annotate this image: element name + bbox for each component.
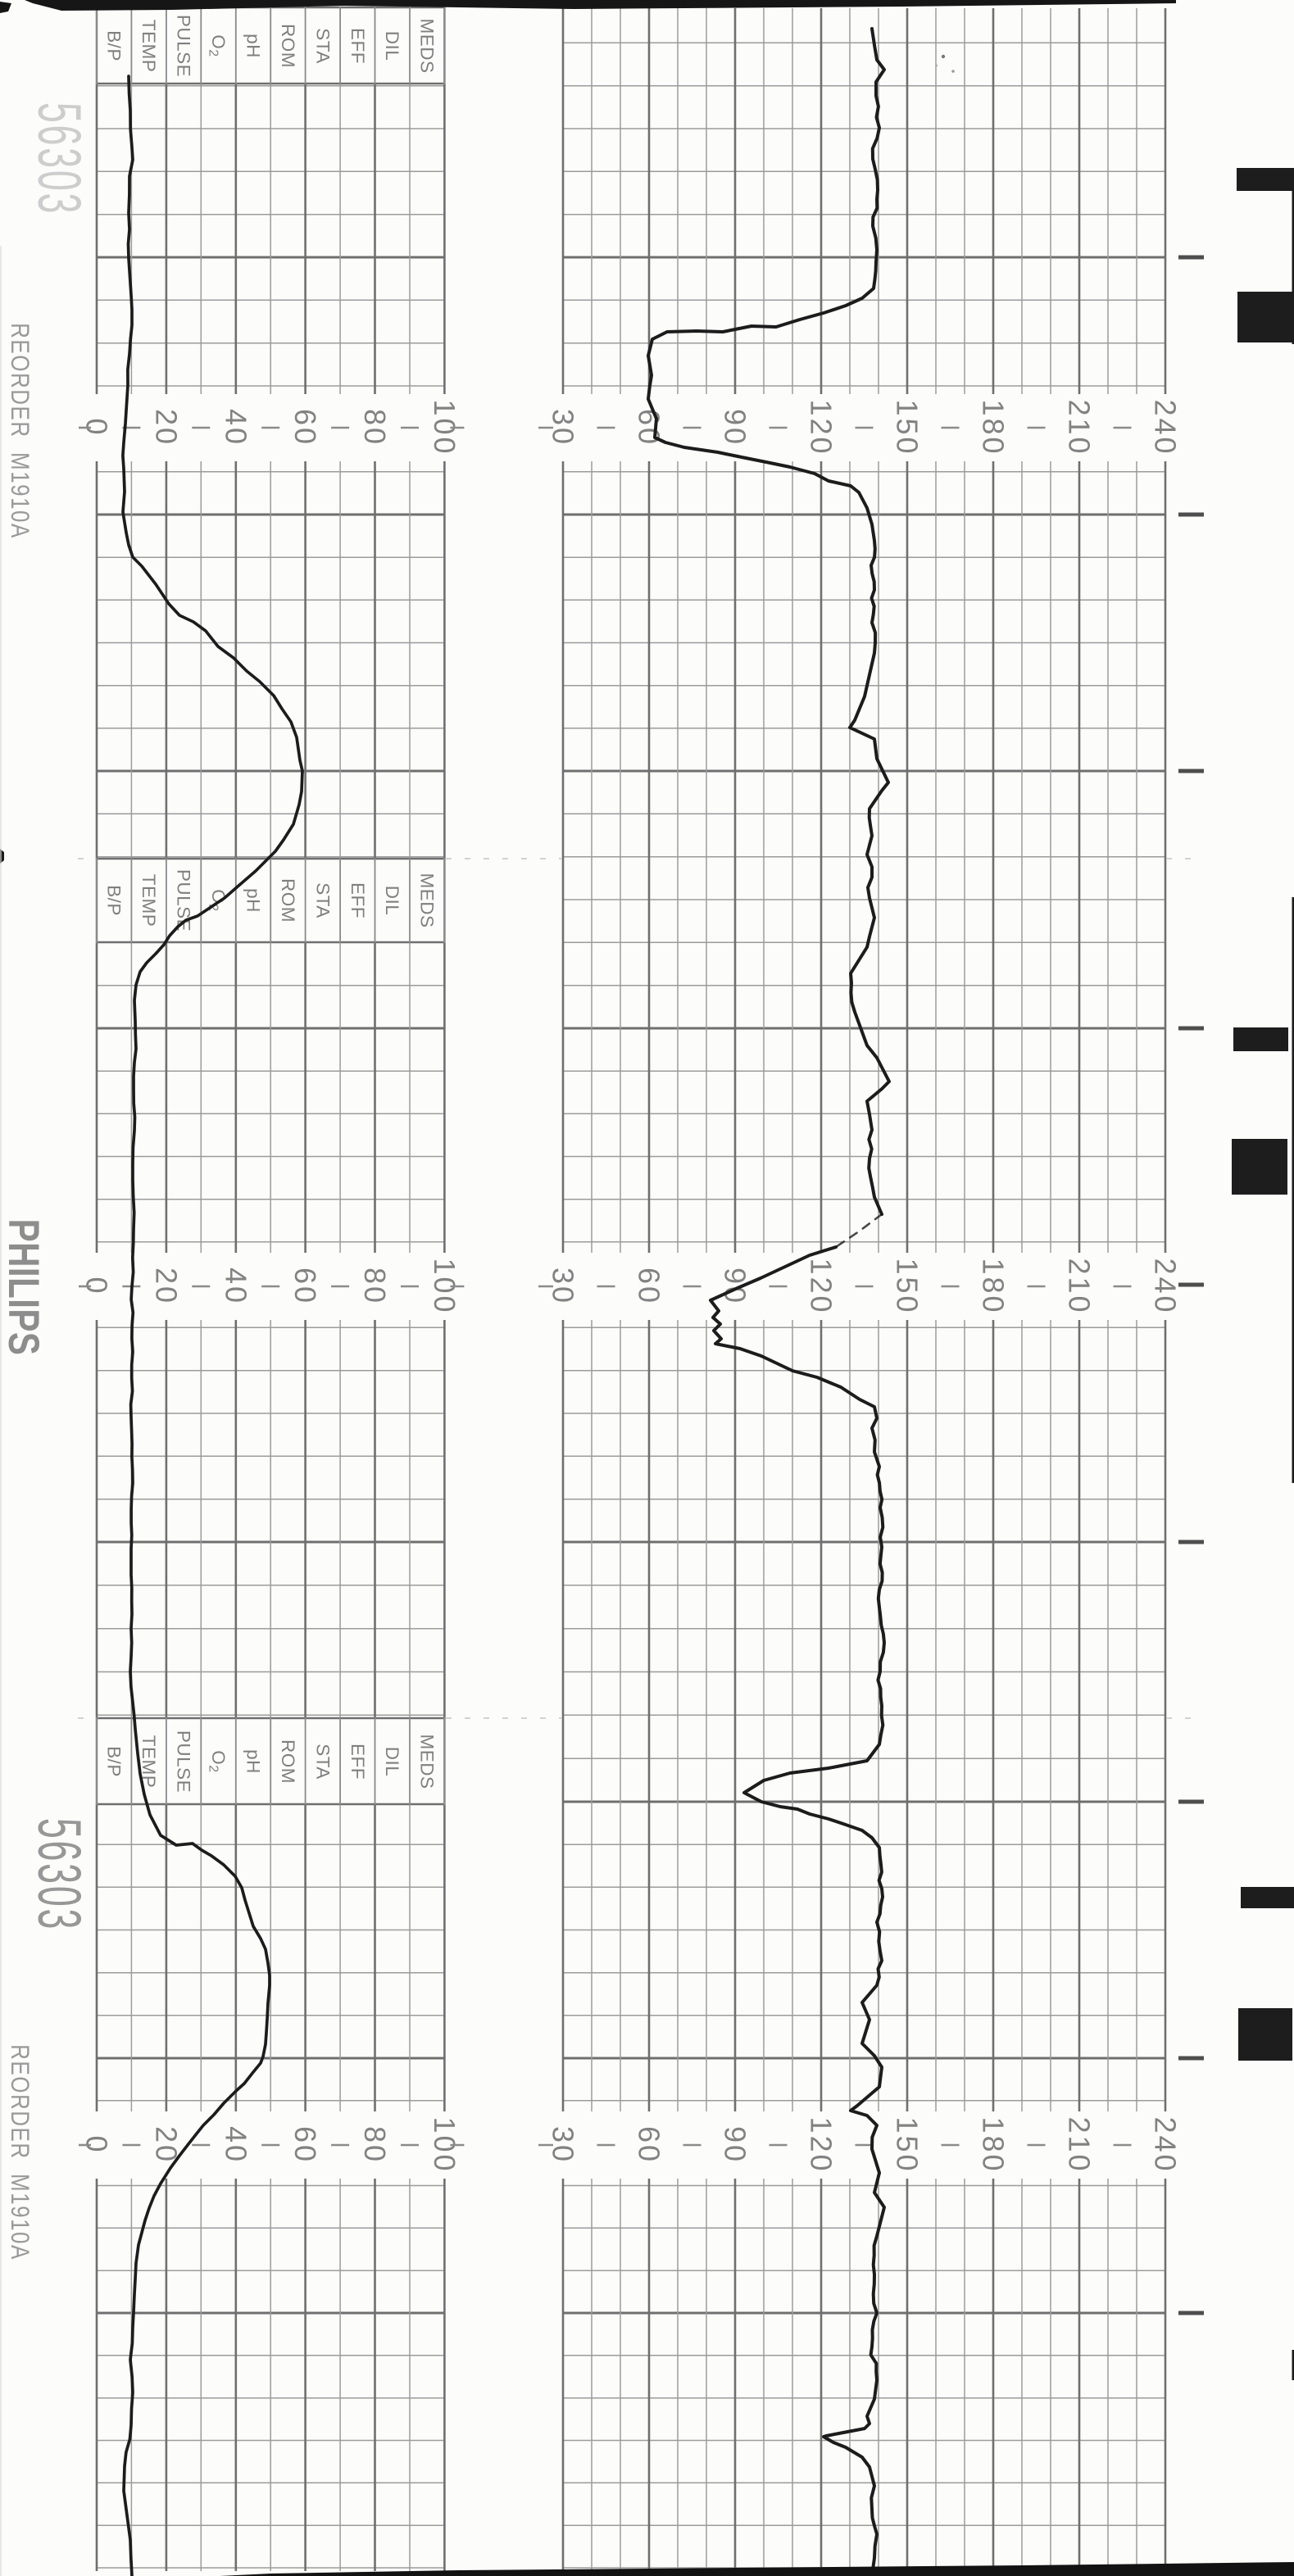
svg-text:MEDS: MEDS xyxy=(417,873,438,927)
svg-text:pH: pH xyxy=(243,1749,264,1774)
svg-text:ROM: ROM xyxy=(278,878,298,923)
svg-text:EFF: EFF xyxy=(347,882,368,918)
svg-text:90: 90 xyxy=(719,409,752,447)
svg-text:90: 90 xyxy=(719,1268,752,1305)
svg-text:TEMP: TEMP xyxy=(138,874,159,927)
svg-text:60: 60 xyxy=(633,1268,666,1305)
svg-text:REORDER M1910A: REORDER M1910A xyxy=(5,323,34,539)
svg-text:STA: STA xyxy=(312,882,333,918)
svg-text:56303: 56303 xyxy=(25,102,93,215)
svg-text:20: 20 xyxy=(149,1268,183,1305)
svg-text:DIL: DIL xyxy=(382,886,402,916)
svg-text:240: 240 xyxy=(1149,1258,1183,1314)
svg-text:150: 150 xyxy=(891,399,924,456)
svg-text:20: 20 xyxy=(149,409,183,447)
svg-text:PHILIPS: PHILIPS xyxy=(0,1219,47,1356)
svg-text:pH: pH xyxy=(243,888,264,913)
svg-text:80: 80 xyxy=(358,409,392,447)
svg-text:B/P: B/P xyxy=(104,885,125,916)
svg-text:STA: STA xyxy=(312,1744,333,1780)
svg-text:TEMP: TEMP xyxy=(138,20,159,73)
svg-text:60: 60 xyxy=(288,1268,322,1305)
svg-text:210: 210 xyxy=(1063,1258,1096,1314)
svg-text:B/P: B/P xyxy=(104,30,125,61)
svg-text:120: 120 xyxy=(805,1258,838,1314)
svg-text:40: 40 xyxy=(219,2126,252,2164)
svg-text:240: 240 xyxy=(1149,399,1183,456)
svg-text:180: 180 xyxy=(977,399,1010,456)
svg-text:40: 40 xyxy=(219,409,252,447)
svg-text:60: 60 xyxy=(288,2126,322,2164)
svg-text:80: 80 xyxy=(358,1268,392,1305)
svg-text:B/P: B/P xyxy=(104,1746,125,1777)
svg-text:MEDS: MEDS xyxy=(417,1734,438,1789)
svg-text:EFF: EFF xyxy=(347,1744,368,1780)
svg-text:240: 240 xyxy=(1149,2116,1183,2173)
svg-text:STA: STA xyxy=(312,28,333,64)
svg-text:DIL: DIL xyxy=(382,1747,402,1777)
svg-text:90: 90 xyxy=(719,2126,752,2164)
svg-text:60: 60 xyxy=(288,409,322,447)
svg-text:EFF: EFF xyxy=(347,28,368,64)
svg-text:PULSE: PULSE xyxy=(174,1730,194,1793)
svg-text:80: 80 xyxy=(358,2126,392,2164)
svg-text:56303: 56303 xyxy=(25,1818,93,1931)
svg-text:120: 120 xyxy=(805,399,838,456)
svg-text:150: 150 xyxy=(891,2116,924,2173)
svg-text:210: 210 xyxy=(1063,399,1096,456)
svg-text:180: 180 xyxy=(977,1258,1010,1314)
svg-text:ROM: ROM xyxy=(278,1739,298,1784)
svg-text:180: 180 xyxy=(977,2116,1010,2173)
svg-text:PULSE: PULSE xyxy=(174,15,194,77)
svg-text:120: 120 xyxy=(805,2116,838,2173)
svg-text:DIL: DIL xyxy=(382,31,402,61)
svg-text:pH: pH xyxy=(243,34,264,58)
svg-text:150: 150 xyxy=(891,1258,924,1314)
svg-text:60: 60 xyxy=(633,2126,666,2164)
svg-text:210: 210 xyxy=(1063,2116,1096,2173)
svg-text:ROM: ROM xyxy=(278,24,298,68)
svg-text:40: 40 xyxy=(219,1268,252,1305)
svg-text:MEDS: MEDS xyxy=(417,18,438,73)
svg-text:REORDER M1910A: REORDER M1910A xyxy=(5,2044,34,2261)
